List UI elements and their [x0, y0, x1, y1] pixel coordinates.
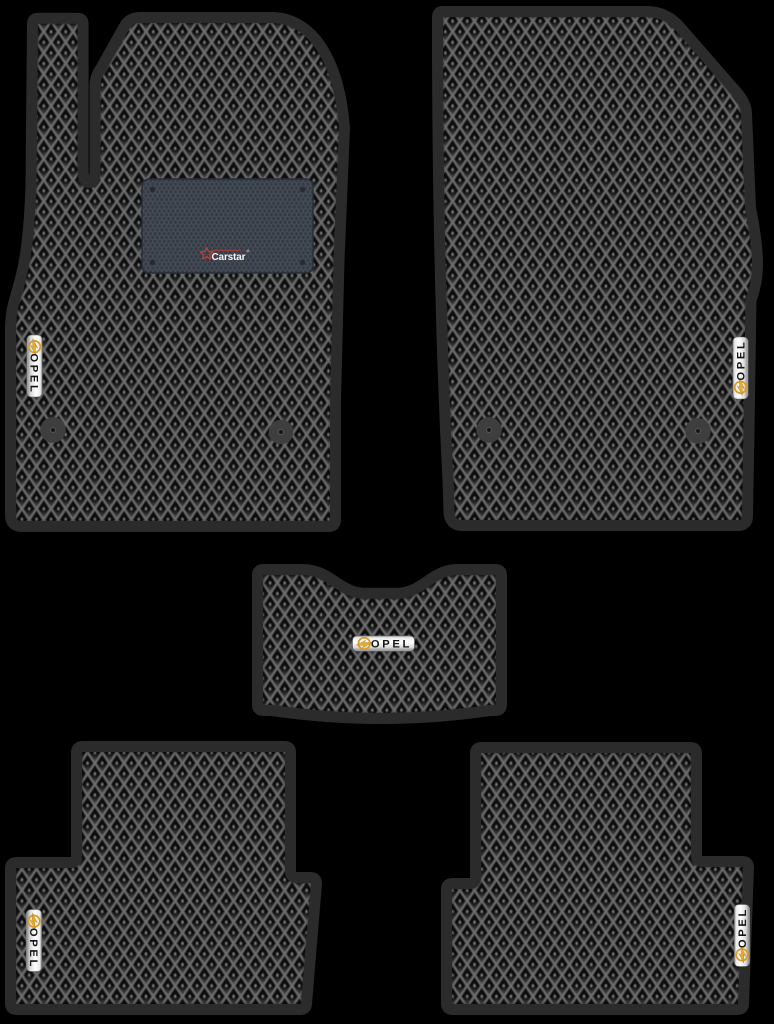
svg-text:Carstar: Carstar — [212, 252, 246, 263]
svg-text:®: ® — [247, 248, 250, 253]
